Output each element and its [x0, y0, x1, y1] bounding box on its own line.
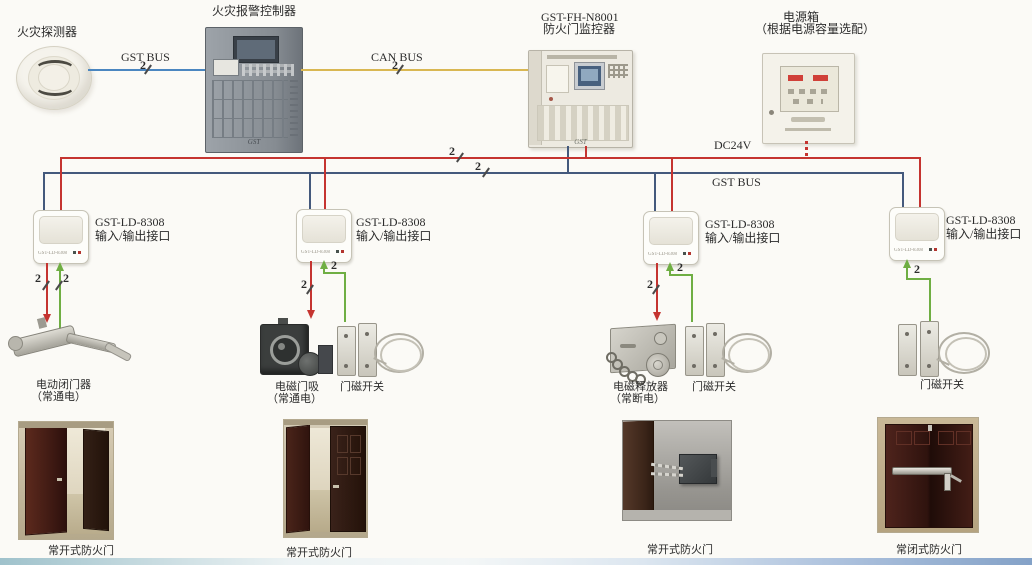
module-face	[39, 216, 83, 244]
module-led-red	[341, 250, 344, 253]
fire-door-system-diagram: 火灾探测器 火灾报警控制器 GST GST BUS 2 CAN BUS 2 GS…	[0, 0, 1032, 565]
power-box-note: （根据电源容量选配）	[755, 23, 875, 36]
controller-screen	[233, 36, 279, 63]
module4-signal-drop	[902, 172, 904, 208]
m1-input-arrowhead	[56, 262, 64, 271]
m2-input-line-v2	[344, 272, 346, 322]
scan-edge-strip	[0, 558, 1032, 565]
dc24v-bus	[60, 157, 920, 159]
fire-alarm-controller: GST	[205, 27, 303, 153]
door-photo-4	[877, 417, 979, 533]
module1-label: 输入/输出接口	[95, 230, 170, 243]
controller-label-plate	[213, 59, 239, 76]
module-led-red	[688, 252, 691, 255]
power-buttons	[793, 99, 823, 104]
module4-power-drop	[919, 157, 921, 208]
module2-power-drop	[324, 157, 326, 210]
module1-signal-drop	[43, 172, 45, 211]
monitor-led-dot	[549, 97, 553, 101]
monitor-header-strip	[547, 55, 617, 59]
door-switch2-figure	[685, 320, 770, 378]
detector-vent	[35, 77, 75, 96]
controller-logo: GST	[206, 138, 302, 146]
m2-output-count: 2	[301, 277, 307, 292]
door-photo-1	[18, 421, 114, 540]
module1-model: GST-LD-8308	[95, 216, 165, 229]
releaser-figure	[606, 320, 690, 380]
door-caption-4: 常闭式防火门	[896, 541, 962, 557]
module-face-print: GST-LD-8308	[301, 250, 335, 255]
door-switch1-figure	[337, 320, 419, 378]
power-buttons	[788, 89, 830, 94]
door-holder-name: 电磁门吸	[275, 381, 319, 393]
m4-input-count: 2	[914, 262, 920, 277]
module3-power-drop	[671, 157, 673, 212]
controller-slats	[212, 80, 288, 138]
m4-input-line-h	[906, 278, 931, 280]
module-face	[302, 215, 346, 243]
controller-label: 火灾报警控制器	[212, 5, 296, 18]
releaser-name: 电磁释放器	[613, 381, 668, 393]
module-face-print: GST-LD-8308	[38, 251, 72, 256]
module2-model: GST-LD-8308	[356, 216, 426, 229]
monitor-keypad	[608, 64, 628, 78]
module-face	[649, 217, 693, 245]
io-module-4: GST-LD-8308	[889, 207, 945, 261]
monitor-signal-drop	[567, 146, 569, 173]
module3-label: 输入/输出接口	[705, 232, 780, 245]
door-closer-note: （常通电）	[31, 391, 86, 403]
door-holder-figure	[258, 316, 338, 378]
power-box-dashed-drop	[805, 141, 808, 158]
module1-power-drop	[60, 157, 62, 211]
monitor-logo: GST	[529, 138, 632, 146]
m1-input-count: 2	[63, 271, 69, 286]
module2-signal-drop	[309, 172, 311, 210]
module-face-print: GST-LD-8308	[648, 252, 682, 257]
m1-output-line	[46, 263, 48, 315]
door-closer-name: 电动闭门器	[36, 379, 91, 391]
gst-main-label: GST BUS	[712, 176, 761, 189]
door-closer-figure	[8, 316, 128, 378]
power-box	[762, 53, 855, 144]
io-module-1: GST-LD-8308	[33, 210, 89, 264]
monitor-display	[574, 62, 605, 90]
m1-output-count: 2	[35, 271, 41, 286]
door-switch3-label: 门磁开关	[920, 379, 964, 391]
power-box-brand-line	[791, 117, 825, 122]
module3-signal-drop	[654, 172, 656, 212]
smoke-detector-figure	[16, 46, 92, 110]
m3-input-line-v2	[691, 274, 693, 322]
releaser-note: （常断电）	[610, 393, 665, 405]
power-box-lock	[769, 110, 774, 115]
detector-label: 火灾探测器	[17, 26, 77, 39]
module-led-green	[683, 252, 686, 255]
module2-label: 输入/输出接口	[356, 230, 431, 243]
monitor-indicator-strips	[537, 105, 629, 141]
controller-side-slats	[290, 80, 298, 138]
fire-door-monitor: GST	[528, 50, 633, 148]
m2-input-count: 2	[331, 258, 337, 273]
module-face	[895, 213, 939, 241]
door-photo-2	[283, 419, 368, 538]
io-module-2: GST-LD-8308	[296, 209, 352, 263]
power-box-panel	[780, 66, 839, 112]
module-led-green	[929, 248, 932, 251]
door-photo-3	[622, 420, 732, 521]
power-led-display	[813, 75, 828, 81]
module-led-green	[336, 250, 339, 253]
module4-label: 输入/输出接口	[946, 228, 1021, 241]
m4-input-line-v2	[929, 278, 931, 322]
dc24v-count: 2	[449, 144, 455, 159]
module-led-red	[78, 251, 81, 254]
module4-model: GST-LD-8308	[946, 214, 1016, 227]
controller-keys	[242, 64, 294, 76]
door-caption-1: 常开式防火门	[48, 542, 114, 558]
power-box-text-line	[785, 128, 831, 131]
monitor-name-label: 防火门监控器	[543, 23, 615, 36]
door-switch2-label: 门磁开关	[692, 381, 736, 393]
module-led-red	[934, 248, 937, 251]
power-led-display	[788, 75, 803, 81]
monitor-doc-window	[546, 65, 569, 93]
gst-main-bus	[43, 172, 903, 174]
can-bus-wire	[301, 69, 528, 71]
door-switch1-label: 门磁开关	[340, 381, 384, 393]
door-holder-note: （常通电）	[267, 393, 322, 405]
dc24v-label: DC24V	[714, 139, 751, 152]
module3-model: GST-LD-8308	[705, 218, 775, 231]
m3-input-count: 2	[677, 260, 683, 275]
m3-output-count: 2	[647, 277, 653, 292]
door-caption-3: 常开式防火门	[647, 541, 713, 557]
gst-main-count: 2	[475, 159, 481, 174]
module-face-print: GST-LD-8308	[894, 248, 928, 253]
door-switch3-figure	[898, 317, 990, 377]
module-led-green	[73, 251, 76, 254]
io-module-3: GST-LD-8308	[643, 211, 699, 265]
